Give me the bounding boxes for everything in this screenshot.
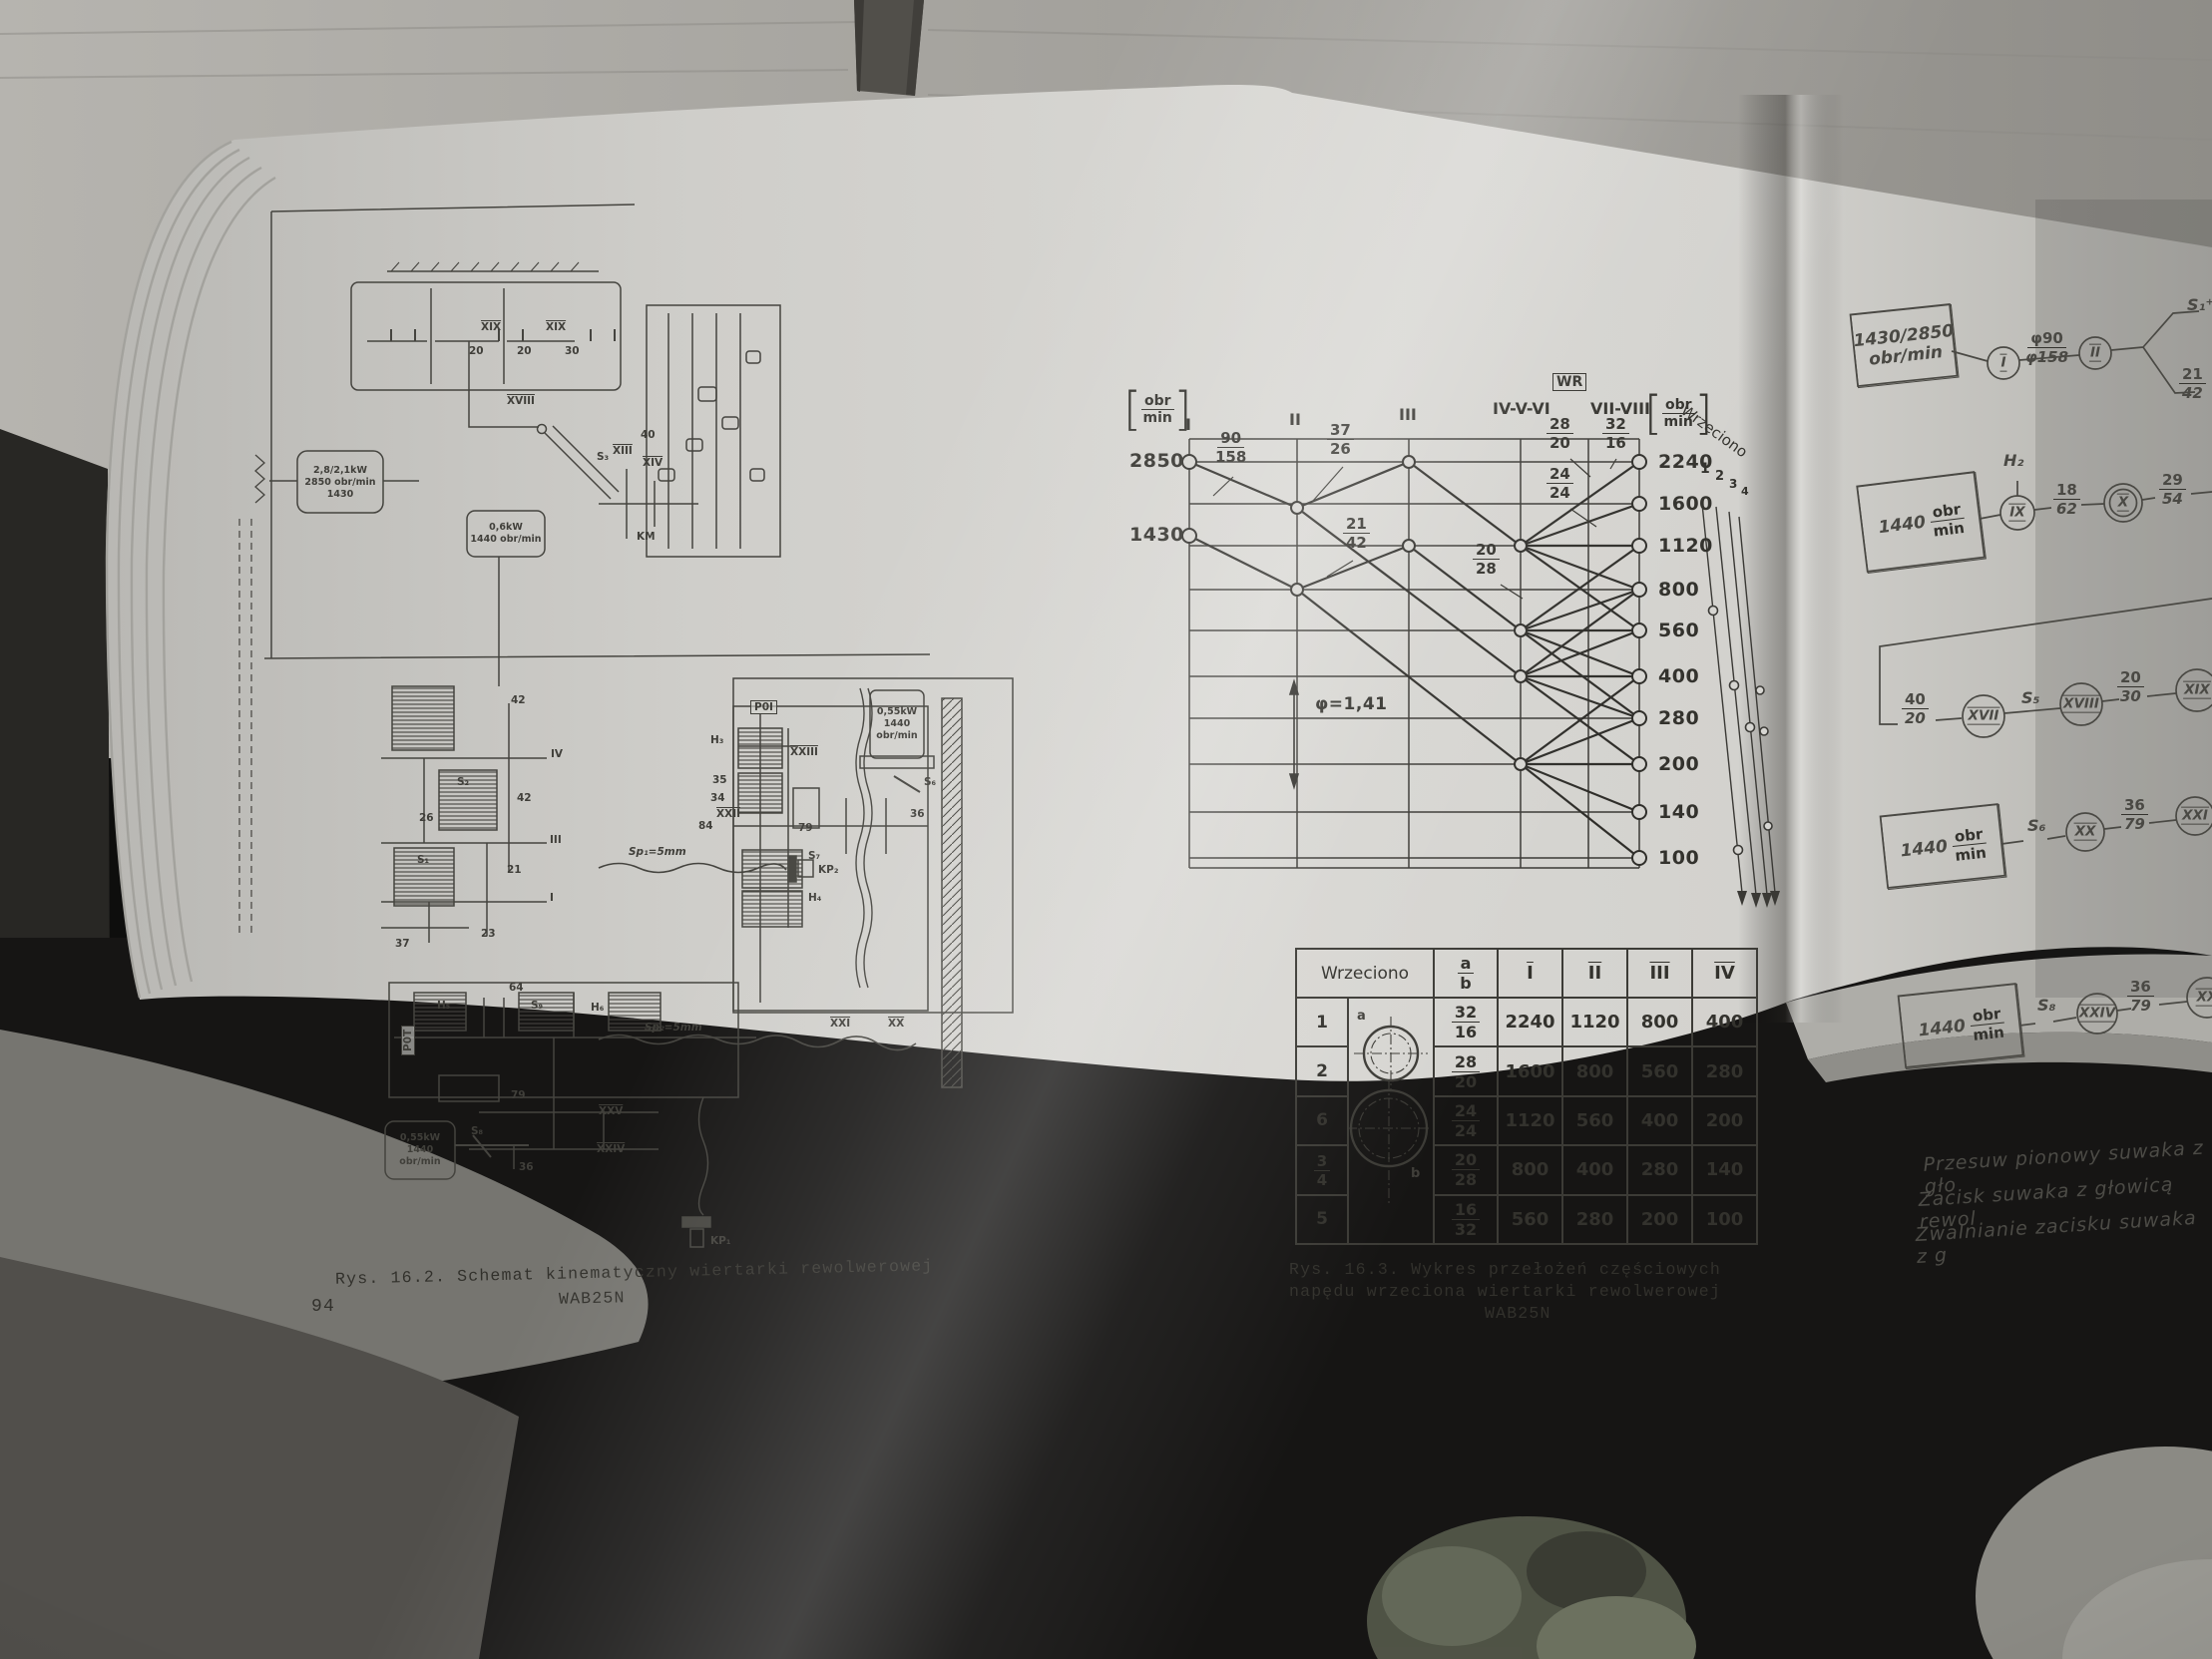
km-tag: KM: [637, 531, 656, 543]
speed-cell: 140: [1692, 1145, 1757, 1194]
gear-30: 30: [565, 345, 580, 357]
speed-cell: 560: [1498, 1195, 1562, 1244]
speed-800: 800: [1658, 579, 1699, 601]
gear-20-a: 20: [469, 345, 484, 357]
clutch-s7: S₇: [808, 850, 820, 862]
table-row: 1 a b 3216 2240 1120 800 400: [1296, 998, 1757, 1046]
wrzeciono-dots: [1709, 607, 1773, 855]
phi-label: φ=1,41: [1315, 694, 1388, 714]
rp-box-1440-b: 1440 obrmin: [1880, 804, 2006, 890]
spindle-num-3: 3: [1729, 477, 1737, 491]
ratio-20-28: 2028: [1473, 541, 1500, 578]
speed-cell: 400: [1627, 1096, 1692, 1145]
motor-main-speed2: 1430: [327, 489, 353, 501]
fig163-caption-line1: Rys. 16.3. Wykres przełożeń częściowych: [1289, 1260, 1721, 1279]
rp-shaft-I: I: [1999, 354, 2006, 372]
clutch-h6: H₆: [591, 1002, 604, 1014]
book-photo-scene: 2,8/2,1kW 2850 obr/min 1430 0,6kW 1440 o…: [0, 0, 2212, 1659]
clutch-s6: S₆: [924, 776, 936, 788]
gear-23: 23: [481, 928, 496, 940]
bracket-open: [: [1123, 389, 1141, 430]
sp2-feed-label: Sp₂=5mm: [645, 1022, 702, 1034]
clutch-h3: H₃: [710, 734, 723, 746]
rp-s5-label: S₅: [2021, 688, 2040, 707]
shaft-label-xiv: XIV: [643, 457, 663, 469]
speed-cell: 1120: [1562, 998, 1627, 1046]
rp-shaft-XX-2: XX: [2196, 989, 2212, 1007]
rp-ratio-18-62: 1862: [2053, 481, 2080, 518]
table-header-I: I: [1498, 949, 1562, 998]
sp1-feed-label: Sp₁=5mm: [629, 846, 686, 858]
rp-shaft-II: II: [2089, 344, 2101, 362]
motor4-power: 0,55kW: [400, 1132, 440, 1144]
spindle-circles: [1349, 999, 1433, 1243]
rp-ratio-29-54: 2954: [2159, 471, 2186, 508]
rp-ratio-36-79-a: 3679: [2121, 796, 2148, 833]
motor3-power: 0,55kW: [877, 706, 917, 718]
wrzeciono-arrows: [1702, 504, 1775, 895]
clutch-s9: S₉: [531, 1000, 543, 1012]
speed-560: 560: [1658, 620, 1699, 641]
gear-37: 37: [395, 938, 410, 950]
ratio-37-26: 3726: [1327, 421, 1354, 458]
rp-s6-label: S₆: [2027, 816, 2046, 835]
motor2-power: 0,6kW: [489, 522, 523, 534]
gear-34: 34: [710, 792, 725, 804]
rp-box4-value: 1440: [1918, 1017, 1967, 1041]
spindle-no: 34: [1296, 1145, 1348, 1194]
wr-tag: WR: [1552, 373, 1586, 391]
rp-box-1440-a: 1440 obrmin: [1857, 472, 1987, 574]
speed-140: 140: [1658, 801, 1699, 823]
speed-chart-rays: [1189, 462, 1639, 858]
speed-400: 400: [1658, 665, 1699, 687]
speed-cell: 560: [1627, 1046, 1692, 1095]
gear-42-b: 42: [517, 792, 532, 804]
chart-unit-left: [ obrmin ]: [1123, 389, 1191, 430]
shaft-label-xxii: XXII: [716, 808, 740, 820]
gear-21: 21: [507, 864, 522, 876]
gear-79-a: 79: [798, 822, 813, 834]
shaft-label-xxiii: XXIII: [790, 746, 818, 758]
table-header-III: III: [1627, 949, 1692, 998]
shaft-label-xiii: XIII: [613, 445, 633, 457]
ratio-ab: 2424: [1434, 1096, 1498, 1145]
table-header-IV: IV: [1692, 949, 1757, 998]
col-header-IV-V-VI: IV-V-VI: [1493, 399, 1550, 418]
rp-ratio-36-79-b: 3679: [2127, 978, 2154, 1015]
ratio-ab: 3216: [1434, 998, 1498, 1046]
rp-ratio-phi: φ90φ158: [2025, 329, 2068, 366]
spindle-a-label: a: [1357, 1009, 1366, 1024]
ratio-32-16: 3216: [1602, 415, 1629, 452]
rp-ratio-40-20: 4020: [1902, 690, 1929, 727]
motor-main-power: 2,8/2,1kW: [313, 465, 367, 477]
ratio-ab: 2820: [1434, 1046, 1498, 1095]
rp-shaft-IX: IX: [2008, 504, 2025, 522]
shaft-label-iv: IV: [551, 748, 563, 760]
kp1-tag: KP₁: [710, 1235, 730, 1247]
speed-cell: 800: [1562, 1046, 1627, 1095]
rp-ratio-21-42: 2142: [2179, 365, 2206, 402]
gear-64: 64: [509, 982, 524, 994]
motor3-box: 0,55kW 1440 obr/min: [870, 696, 924, 752]
ratio-ab: 1632: [1434, 1195, 1498, 1244]
ratio-ab: 2028: [1434, 1145, 1498, 1194]
motor2-speed: 1440 obr/min: [470, 534, 541, 546]
spindle-num-1: 1: [1700, 461, 1710, 477]
ratio-24-24: 2424: [1547, 465, 1573, 502]
speed-200: 200: [1658, 753, 1699, 775]
poi-tag: P0I: [750, 700, 777, 714]
motor4-speed: 1440 obr/min: [387, 1144, 453, 1168]
speed-cell: 1120: [1498, 1096, 1562, 1145]
rp-box-1430-2850: 1430/2850 obr/min: [1850, 304, 1959, 388]
speed-cell: 280: [1692, 1046, 1757, 1095]
gear-26: 26: [419, 812, 434, 824]
shaft-label-xxiv: XXIV: [597, 1143, 625, 1155]
rp-shaft-XVIII: XVIII: [2062, 695, 2100, 713]
rp-shaft-XXI: XXI: [2181, 807, 2209, 825]
speed-cell: 280: [1627, 1145, 1692, 1194]
shaft-label-xviii: XVIII: [507, 395, 535, 407]
shaft-label-xix-a: XIX: [481, 321, 501, 333]
speed-cell: 800: [1498, 1145, 1562, 1194]
pot-tag: P0T: [401, 1026, 415, 1055]
rp-shaft-XVII: XVII: [1968, 707, 2000, 725]
spindle-num-4: 4: [1741, 485, 1749, 498]
speed-cell: 800: [1627, 998, 1692, 1046]
table-header-wrzeciono: Wrzeciono: [1296, 949, 1434, 998]
speed-100: 100: [1658, 847, 1699, 869]
spindle-b-label: b: [1411, 1166, 1420, 1181]
gear-20-b: 20: [517, 345, 532, 357]
rp-box3-value: 1440: [1900, 837, 1949, 862]
rp-shaft-X: X: [2117, 494, 2129, 512]
speed-280: 280: [1658, 707, 1699, 729]
speed-cell: 200: [1627, 1195, 1692, 1244]
clutch-s8: S₈: [471, 1125, 483, 1137]
rp-s1-label: S₁⁺: [2187, 295, 2212, 314]
speed-cell: 200: [1692, 1096, 1757, 1145]
shaft-label-xx: XX: [888, 1018, 904, 1030]
page-number: 94: [311, 1297, 335, 1317]
table-header-ab: ab: [1434, 949, 1498, 998]
clutch-s3: S₃: [597, 451, 609, 463]
wrzeciono-arrowheads: [1737, 891, 1780, 908]
speed-cell: 560: [1562, 1096, 1627, 1145]
rp-ratio-20-30: 2030: [2117, 668, 2144, 705]
kp2-tag: KP₂: [818, 864, 838, 876]
speed-cell: 280: [1562, 1195, 1627, 1244]
rp-shaft-XIX: XIX: [2183, 681, 2211, 699]
rp-box-1440-c: 1440 obrmin: [1898, 984, 2024, 1069]
spindle-no: 5: [1296, 1195, 1348, 1244]
shaft-label-xix-b: XIX: [546, 321, 566, 333]
shaft-label-iii: III: [550, 834, 562, 846]
gear-36-a: 36: [910, 808, 925, 820]
gear-40: 40: [641, 429, 656, 441]
spindle-drawing: a b: [1348, 998, 1434, 1244]
fig162-caption-line2: WAB25N: [559, 1288, 626, 1309]
rp-shaft-XXIV: XXIV: [2078, 1005, 2116, 1023]
diagram-linework: [0, 0, 2212, 1659]
rp-h2-label: H₂: [2003, 451, 2023, 470]
fig163-caption-line2: napędu wrzeciona wiertarki rewolwerowej: [1289, 1282, 1721, 1301]
clutch-h5: H₅: [437, 1000, 450, 1012]
bracket-open: [: [1644, 393, 1662, 434]
left-speed-2850: 2850: [1129, 450, 1184, 472]
rp-s8-label: S₈: [2037, 996, 2056, 1015]
unit-min: min: [1143, 410, 1172, 426]
shaft-label-i: I: [550, 892, 554, 904]
spindle-no: 1: [1296, 998, 1348, 1046]
col-header-III: III: [1399, 405, 1417, 424]
rp-box2-value: 1440: [1878, 513, 1927, 539]
shaft-label-xxv: XXV: [599, 1105, 623, 1117]
motor4-box: 0,55kW 1440 obr/min: [387, 1127, 453, 1173]
unit-obr: obr: [1141, 393, 1174, 410]
speed-cell: 1600: [1498, 1046, 1562, 1095]
spindle-no: 2: [1296, 1046, 1348, 1095]
spindle-speed-table: Wrzeciono ab I II III IV 1 a: [1295, 948, 1758, 1245]
gear-79-b: 79: [511, 1089, 526, 1101]
col-header-I: I: [1185, 415, 1191, 434]
motor-main-speed1: 2850 obr/min: [304, 477, 375, 489]
gear-84: 84: [698, 820, 713, 832]
speed-cell: 400: [1562, 1145, 1627, 1194]
ratio-90-158: 90158: [1215, 429, 1246, 466]
motor-main-box: 2,8/2,1kW 2850 obr/min 1430: [299, 455, 381, 511]
ratio-21-42: 2142: [1343, 515, 1370, 552]
motor3-speed: 1440 obr/min: [870, 718, 924, 742]
shaft-label-xxi: XXI: [830, 1018, 850, 1030]
spindle-num-2: 2: [1715, 469, 1724, 484]
fig163-caption-line3: WAB25N: [1485, 1304, 1551, 1323]
speed-cell: 100: [1692, 1195, 1757, 1244]
gear-36-b: 36: [519, 1161, 534, 1173]
clutch-s1: S₁: [417, 854, 429, 866]
gear-42-a: 42: [511, 694, 526, 706]
motor2-box: 0,6kW 1440 obr/min: [469, 514, 543, 554]
speed-1120: 1120: [1658, 535, 1713, 557]
ratio-28-20: 2820: [1547, 415, 1573, 452]
left-speed-1430: 1430: [1129, 524, 1184, 546]
gear-35: 35: [712, 774, 727, 786]
right-page-lines: [1851, 304, 2212, 1067]
spindle-no: 6: [1296, 1096, 1348, 1145]
speed-1600: 1600: [1658, 493, 1713, 515]
col-header-II: II: [1289, 410, 1301, 429]
clutch-h4: H₄: [808, 892, 821, 904]
speed-chart-nodes: [1182, 455, 1646, 865]
clutch-s2: S₂: [457, 776, 469, 788]
table-header-II: II: [1562, 949, 1627, 998]
speed-cell: 2240: [1498, 998, 1562, 1046]
rp-shaft-XX: XX: [2074, 823, 2097, 841]
speed-cell: 400: [1692, 998, 1757, 1046]
